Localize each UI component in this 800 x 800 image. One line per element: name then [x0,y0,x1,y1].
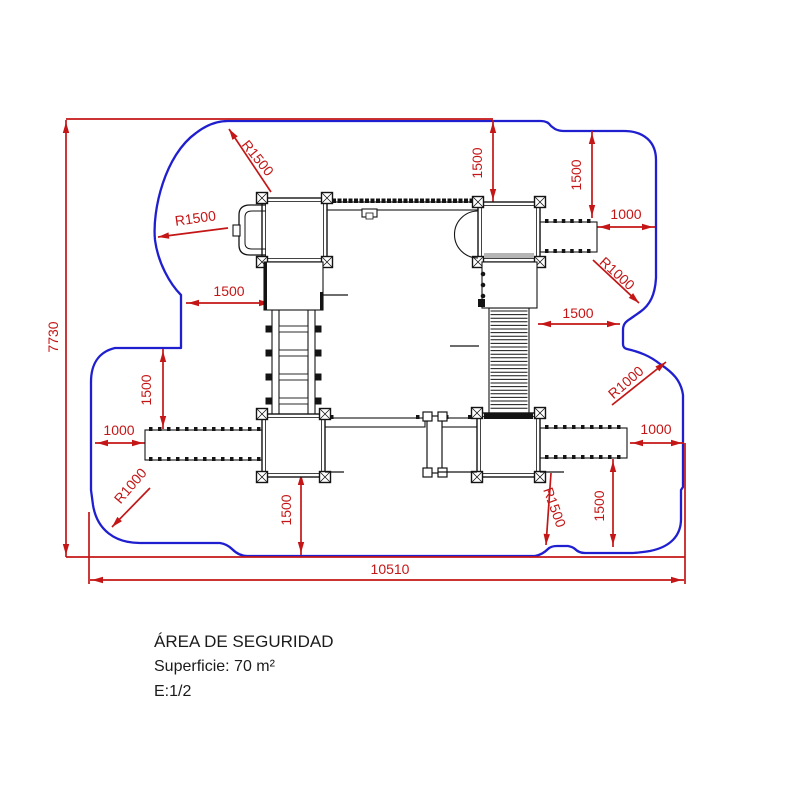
beam-tick [343,199,347,204]
beam-tick [230,457,234,461]
dimension-arrowhead [63,544,69,555]
beam-tick [221,457,225,461]
beam-top-right [540,222,597,252]
beam-tick [360,199,364,204]
dim-label-1000-right-lower: 1000 [640,421,671,437]
dim-label-r1500-bottom-right: R1500 [540,485,569,529]
beam-tick [617,455,621,459]
dim-label-1500-bottom-center: 1500 [278,494,294,525]
beam-tick [464,199,468,204]
dimension-arrowhead [543,534,550,545]
beam-tick [420,199,424,204]
title-block: ÁREA DE SEGURIDAD Superficie: 70 m² E:1/… [154,629,334,704]
dimension-arrowhead [92,577,103,583]
beam-tick [257,427,261,431]
beam-tick [563,455,567,459]
platform-inner-edge [266,202,324,259]
beam-tick [599,455,603,459]
beam-tick [608,425,612,429]
beam-tick [167,457,171,461]
beam-tick [562,249,566,253]
beam-tick [176,427,180,431]
ladder-rail [308,310,315,415]
dimension-arrowhead [599,224,610,230]
beam-tick [545,425,549,429]
beam-tick [587,249,591,253]
platform-inner-edge [482,206,537,259]
drawing-title: ÁREA DE SEGURIDAD [154,629,334,654]
beam-tick [453,199,457,204]
dim-label-1500-top-left: 1500 [213,283,244,299]
beam-tick [581,425,585,429]
beam-tick [248,457,252,461]
beam-tick [376,199,380,204]
beam-tick [590,455,594,459]
dimension-arrowhead [589,133,595,144]
beam-tick [365,199,369,204]
beam-tick [587,219,591,223]
beam-tick [176,457,180,461]
dim-label-1500-top-second: 1500 [568,159,584,190]
deck-shading [484,253,534,258]
beam-tick [437,199,441,204]
dim-label-1000-top-right: 1000 [610,206,641,222]
frame-post [423,468,432,477]
beam-tick [442,199,446,204]
beam-tick [338,199,342,204]
fastener-dot [481,283,486,288]
frame-post [423,412,432,421]
slide-landing-band [484,413,533,419]
ladder-rung [279,374,308,380]
fastener-dot [481,272,486,277]
beam-tick [167,427,171,431]
beam-tick [431,199,435,204]
beam-tick [349,199,353,204]
beam-tick [212,427,216,431]
dimension-arrowhead [610,534,616,545]
dimension-arrowhead [540,321,551,327]
beam-tick [459,199,463,204]
beam-tick [398,199,402,204]
beam-tick [590,425,594,429]
beam-tick [194,427,198,431]
dim-label-1500-bottom-right: 1500 [591,490,607,521]
frame-post [438,412,447,421]
beam-tick [158,427,162,431]
dim-label-1500-right-mid: 1500 [562,305,593,321]
plan-drawing: 7730 R1500 R1500 1500 1500 1500 1000 R10… [0,0,800,800]
ladder-rung [279,398,308,404]
platform-inner-edge [266,418,322,474]
beam-left [145,430,262,460]
dimension-arrowhead [589,205,595,216]
beam-tick [230,427,234,431]
beam-tick [203,457,207,461]
dim-label-r1000-bottom-left: R1000 [111,465,150,507]
beam-tick [554,455,558,459]
dim-label-1500-left-mid: 1500 [138,374,154,405]
dim-label-total-height: 7730 [45,321,61,352]
dimension-arrowhead [132,440,143,446]
ladder-stud [266,326,273,333]
beam-tick [570,219,574,223]
beam-tick [426,199,430,204]
beam-tick [579,219,583,223]
beam-tick [553,249,557,253]
beam-tick [572,425,576,429]
beam-tick [149,427,153,431]
top-beam [327,202,478,210]
beam-tick [149,457,153,461]
beam-tick [203,427,207,431]
fastener-block [478,299,485,307]
dim-label-r1000-top-right: R1000 [597,254,639,294]
beam-tick [212,457,216,461]
ladder-rung [279,326,308,332]
dimension-arrowhead [671,440,682,446]
beam-tick [393,199,397,204]
beam-tick [415,199,419,204]
connector-frame [427,416,442,473]
half-round-panel [455,211,479,258]
dim-label-total-width: 10510 [371,561,410,577]
surface-value: Superficie: 70 m² [154,654,334,679]
beam-tick [409,199,413,204]
dim-label-r1500-top-left-inner: R1500 [174,207,217,229]
dimension-arrowhead [188,300,199,306]
fastener-dot [481,294,486,299]
dimension-arrowhead [160,416,166,427]
tower-section-right [482,262,537,308]
drawing-sheet: 7730 R1500 R1500 1500 1500 1500 1000 R10… [0,0,800,800]
beam-tick [572,455,576,459]
ladder-stud [266,374,273,381]
beam-tick [221,427,225,431]
beam-tick [554,425,558,429]
beam-tick [257,457,261,461]
beam-tick [545,219,549,223]
beam-tick [563,425,567,429]
beam-tick [608,455,612,459]
ladder-rung [279,350,308,356]
scale-value: E:1/2 [154,679,334,704]
grab-handle-nub [233,225,240,236]
beam-tick [416,415,420,419]
platform-inner-edge [481,417,537,474]
beam-tick [570,249,574,253]
dimension-arrowhead [671,577,682,583]
dimension-arrowhead [63,122,69,133]
dimension-arrowhead [97,440,108,446]
beam-tick [239,427,243,431]
ladder-stud [315,326,322,333]
dim-label-1000-left: 1000 [103,422,134,438]
beam-tick [579,249,583,253]
dim-label-1500-top-first: 1500 [469,147,485,178]
connector-beam [325,418,425,427]
playground-structure [145,193,627,483]
beam-tick [371,199,375,204]
ladder-stud [315,350,322,357]
dimension-arrowhead [490,189,496,200]
beam-tick [158,457,162,461]
beam-tick [354,199,358,204]
dimension-arrowhead [632,440,643,446]
dimension-arrowhead [298,542,304,553]
dimension-arrowhead [490,122,496,133]
ladder-stud [266,398,273,405]
beam-tick [185,427,189,431]
beam-tick [239,457,243,461]
dimension-arrowhead [642,224,653,230]
ladder-stud [315,374,322,381]
ladder-rail [272,310,279,415]
beam-tick [553,219,557,223]
beam-notch-inner [366,213,373,219]
beam-tick [617,425,621,429]
beam-tick [248,427,252,431]
beam-tick [562,219,566,223]
beam-bottom-right [540,428,627,458]
dimension-arrowhead [607,321,618,327]
beam-tick [404,199,408,204]
beam-tick [599,425,603,429]
beam-tick [194,457,198,461]
ladder-stud [266,350,273,357]
ladder-stud [315,398,322,405]
tower-section-left [264,262,323,310]
dimension-arrowhead [226,127,237,140]
beam-tick [185,457,189,461]
dimension-arrowhead [610,461,616,472]
beam-tick [448,199,452,204]
beam-tick [387,199,391,204]
beam-tick [545,249,549,253]
beam-tick [581,455,585,459]
beam-tick [545,455,549,459]
dimension-arrowhead [160,351,166,362]
beam-tick [382,199,386,204]
